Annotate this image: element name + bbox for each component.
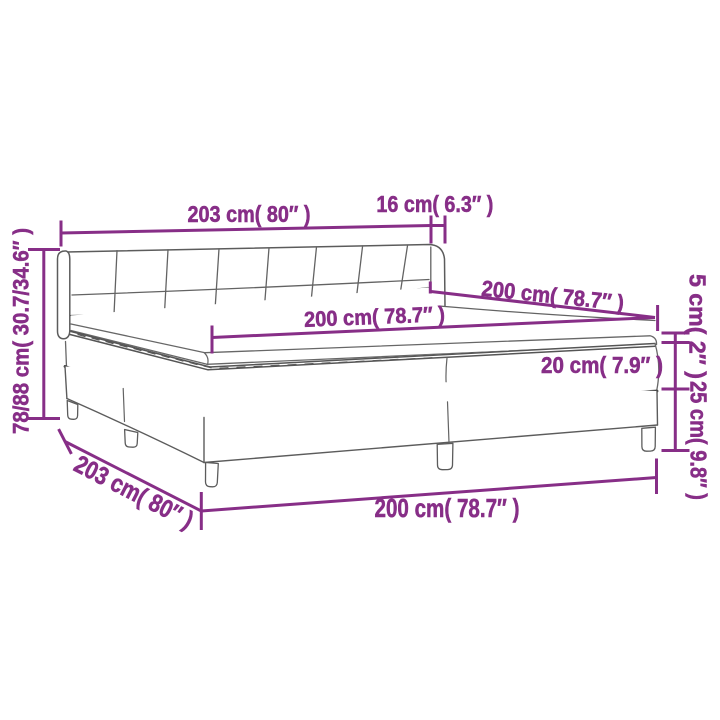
svg-text:5 cm( 2″ ): 5 cm( 2″ ) [684, 274, 710, 379]
svg-text:203 cm( 80″ ): 203 cm( 80″ ) [188, 201, 311, 227]
svg-text:25 cm( 9.8″ ): 25 cm( 9.8″ ) [685, 381, 711, 500]
svg-text:78/88 cm( 30.7/34.6″ ): 78/88 cm( 30.7/34.6″ ) [9, 228, 34, 434]
svg-text:20 cm( 7.9″ ): 20 cm( 7.9″ ) [541, 352, 663, 378]
svg-text:200 cm( 78.7″ ): 200 cm( 78.7″ ) [375, 493, 520, 523]
svg-text:16 cm( 6.3″ ): 16 cm( 6.3″ ) [376, 191, 493, 217]
